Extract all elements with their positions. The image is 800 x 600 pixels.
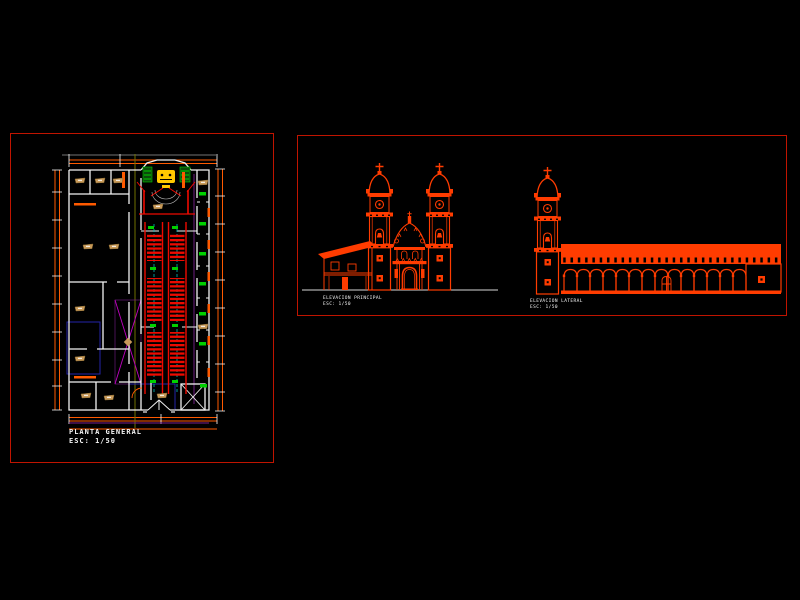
elevations-drawing	[298, 136, 786, 315]
elevation-sheet-frame: ELEVACION PRINCIPALESC: 1/50 ELEVACION L…	[297, 135, 787, 316]
annex-house	[318, 241, 376, 290]
side-caption-text: ELEVACION LATERAL	[530, 299, 583, 304]
wall-highlights	[74, 203, 210, 379]
front-scale-text: ESC: 1/50	[323, 302, 351, 307]
plan-sheet-frame: PLANTA GENERALESC: 1/50	[10, 133, 274, 463]
plan-title: PLANTA GENERAL	[69, 428, 142, 436]
bell-tower-right	[426, 163, 453, 290]
plan-scale-label: ESC: 1/50	[69, 437, 116, 445]
bell-tower-left	[366, 163, 393, 290]
front-elevation-caption: ELEVACION PRINCIPALESC: 1/50	[323, 296, 382, 308]
side-elevation-caption: ELEVACION LATERALESC: 1/50	[530, 299, 583, 311]
chancel	[122, 167, 195, 214]
side-elevation	[534, 167, 781, 294]
front-elevation	[302, 163, 498, 290]
plan-title-block: PLANTA GENERALESC: 1/50	[69, 428, 142, 446]
pews	[145, 222, 186, 394]
portada	[393, 212, 427, 291]
base-band	[561, 291, 781, 295]
front-caption-text: ELEVACION PRINCIPAL	[323, 296, 382, 301]
arched-door	[662, 277, 671, 293]
floor-plan-drawing	[11, 134, 273, 462]
side-scale-text: ESC: 1/50	[530, 305, 558, 310]
bell-tower-side	[534, 167, 561, 294]
cad-canvas: PLANTA GENERALESC: 1/50	[0, 0, 800, 600]
arcade-building	[561, 244, 781, 294]
window-band	[561, 256, 781, 264]
altar	[157, 170, 175, 183]
